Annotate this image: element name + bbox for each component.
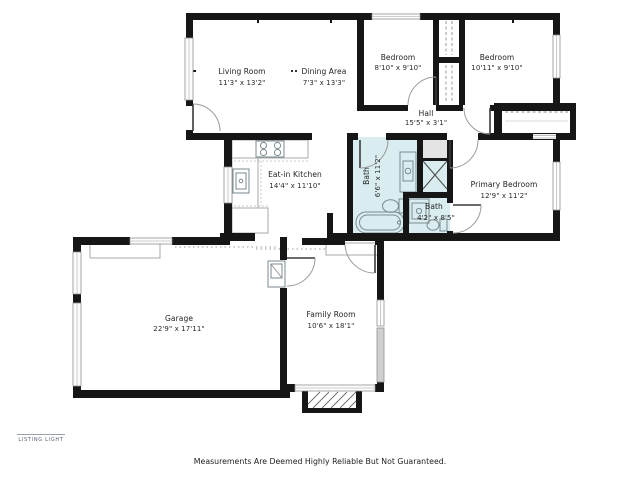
bedroom-1-name: Bedroom [381,53,416,62]
water-heater-icon [268,261,285,287]
kitchen-counter-top [232,140,308,158]
porch-steps [304,392,359,408]
room-labels: Living Room 11'3" x 13'2" Dining Area 7'… [153,53,537,333]
family-room-name: Family Room [307,310,356,319]
family-room-dims: 10'6" x 18'1" [308,322,355,330]
stove-icon [256,141,284,157]
entry-door [193,104,220,131]
wardrobe-slider [533,134,556,139]
dining-marker [291,70,297,72]
hall-name: Hall [419,109,434,118]
living-room-dims: 11'3" x 13'2" [219,79,266,87]
floor-plan-page: Living Room 11'3" x 13'2" Dining Area 7'… [0,0,640,480]
bedroom2-door [464,108,490,134]
primary-bedroom-name: Primary Bedroom [471,180,538,189]
garage-family-door [287,258,315,286]
floor-plan: Living Room 11'3" x 13'2" Dining Area 7'… [0,0,640,480]
measurements-disclaimer: Measurements Are Deemed Highly Reliable … [0,457,640,466]
bedroom-2-dims: 10'11" x 9'10" [471,64,522,72]
listing-light-watermark: LISTING LIGHT [17,434,65,443]
garage-dims: 22'9" x 17'11" [153,325,204,333]
kitchen-name: Eat-in Kitchen [268,170,322,179]
bath-2-name: Bath [425,202,443,211]
bedroom-2-name: Bedroom [480,53,515,62]
bedroom1-door [408,77,436,105]
dining-area-name: Dining Area [302,67,347,76]
kitchen-dims: 14'4" x 11'10" [269,182,320,190]
dining-area-dims: 7'3" x 13'3" [303,79,345,87]
bath-main-dims: 6'6" x 11'2" [374,155,382,197]
linen-closet-fill [420,140,450,158]
living-room-name: Living Room [218,67,265,76]
bath2-door [453,205,481,233]
kitchen-counter-bottom [232,208,268,233]
primary-bedroom-dims: 12'9" x 11'2" [481,192,528,200]
primary-door [450,140,478,168]
family-door-panel [377,328,384,382]
hall-dims: 15'5" x 3'1" [405,119,447,127]
bath-main-name: Bath [362,167,371,185]
bedroom-1-dims: 8'10" x 9'10" [375,64,422,72]
bath-2-dims: 4'2" x 8'5" [417,214,455,222]
kitchen-sink-icon [233,169,249,193]
garage-name: Garage [165,314,193,323]
family-room-door [345,245,375,273]
